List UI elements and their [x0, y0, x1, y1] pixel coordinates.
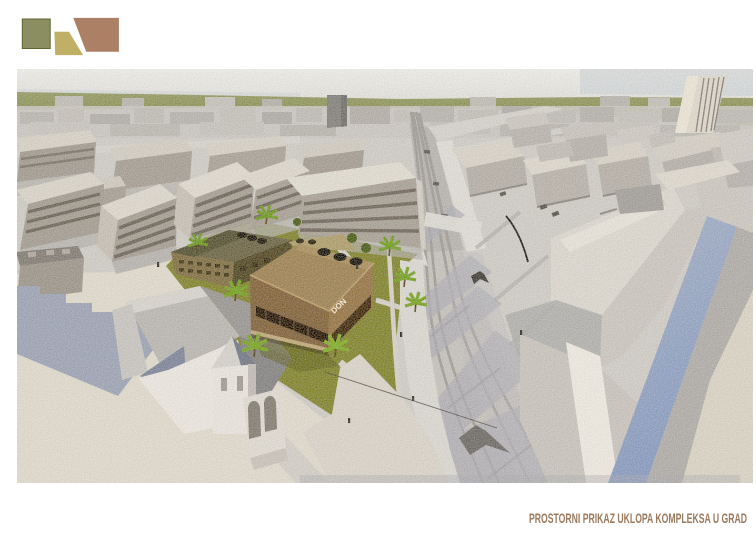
- svg-text:PROSTORNI PRIKAZ UKLOPA KOMPLE: PROSTORNI PRIKAZ UKLOPA KOMPLEKSA U GRAD: [529, 510, 747, 526]
